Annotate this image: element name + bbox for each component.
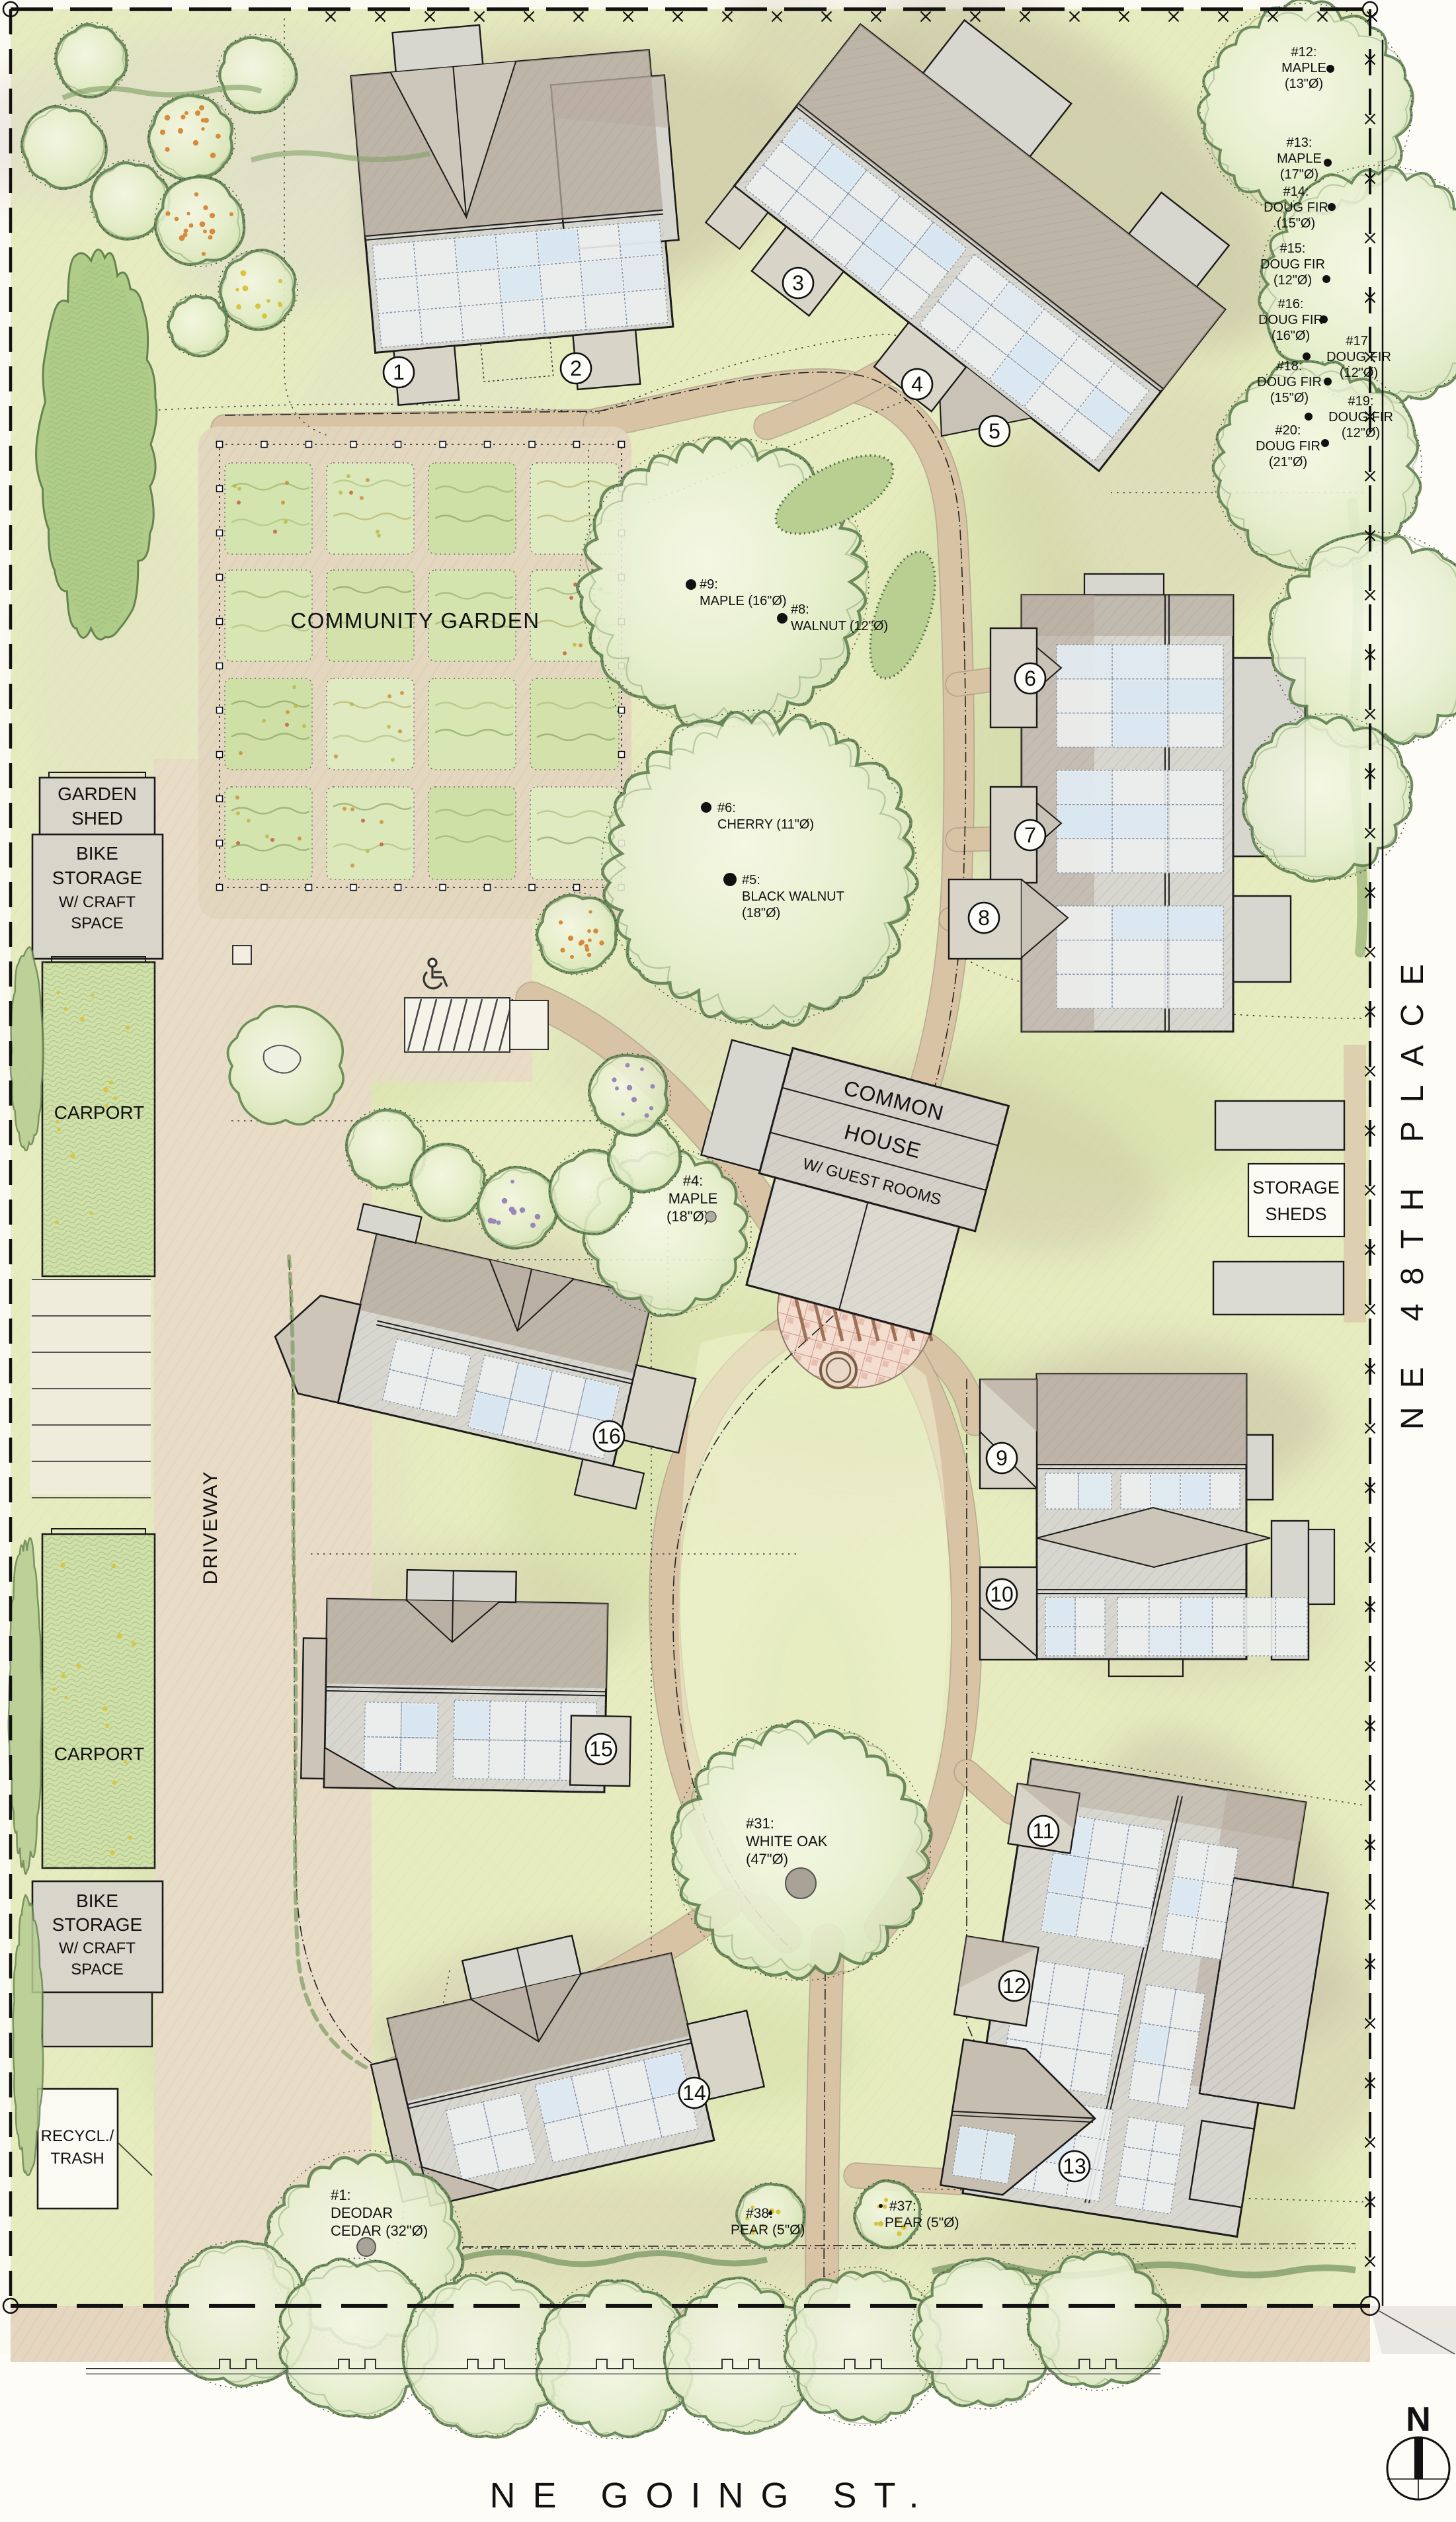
svg-text:MAPLE: MAPLE [668,1190,718,1207]
svg-text:#9:: #9: [700,577,718,592]
svg-text:12: 12 [1002,1974,1026,1998]
svg-text:4: 4 [911,372,923,396]
svg-text:16: 16 [597,1424,621,1448]
svg-text:BIKE: BIKE [76,1891,118,1911]
svg-text:11: 11 [1032,1819,1054,1843]
svg-text:8: 8 [978,906,990,930]
svg-text:CARPORT: CARPORT [54,1744,144,1764]
svg-text:#18:: #18: [1277,359,1303,374]
svg-text:#1:: #1: [331,2187,351,2203]
svg-text:MAPLE: MAPLE [1281,61,1326,75]
svg-text:#8:: #8: [791,602,809,617]
svg-text:#17:: #17: [1346,334,1372,348]
svg-text:(12"Ø): (12"Ø) [1340,366,1378,380]
svg-text:DOUG FIR: DOUG FIR [1257,375,1322,389]
svg-text:DRIVEWAY: DRIVEWAY [200,1471,222,1585]
svg-text:2: 2 [570,356,582,380]
svg-text:RECYCL./: RECYCL./ [41,2127,114,2145]
svg-text:DOUG FIR: DOUG FIR [1264,200,1328,215]
svg-text:#37:: #37: [889,2199,916,2214]
svg-text:SPACE: SPACE [71,915,124,932]
svg-text:PEAR (5"Ø): PEAR (5"Ø) [885,2215,959,2230]
svg-text:(12"Ø): (12"Ø) [1274,273,1312,288]
svg-text:(17"Ø): (17"Ø) [1280,167,1318,182]
svg-text:BIKE: BIKE [76,843,118,864]
svg-text:DOUG FIR: DOUG FIR [1326,350,1391,364]
svg-text:#20:: #20: [1275,423,1301,438]
svg-text:N: N [1406,2400,1431,2439]
svg-text:6: 6 [1024,667,1036,690]
svg-text:10: 10 [990,1582,1014,1606]
svg-text:3: 3 [792,271,804,295]
svg-text:BLACK WALNUT: BLACK WALNUT [742,889,844,904]
svg-text:NE GOING ST.: NE GOING ST. [489,2476,936,2515]
svg-text:14: 14 [682,2081,706,2105]
svg-text:(18"Ø): (18"Ø) [742,906,780,920]
svg-text:(15"Ø): (15"Ø) [1277,216,1315,231]
svg-text:STORAGE: STORAGE [52,1914,142,1935]
svg-text:#16:: #16: [1278,297,1304,311]
svg-text:PEAR (5"Ø): PEAR (5"Ø) [731,2222,805,2238]
svg-text:DOUG FIR: DOUG FIR [1258,313,1323,327]
svg-text:WHITE OAK: WHITE OAK [746,1833,828,1850]
svg-text:MAPLE: MAPLE [1277,151,1322,166]
svg-text:7: 7 [1024,823,1036,847]
svg-text:SHEDS: SHEDS [1265,1204,1326,1224]
svg-text:(12"Ø): (12"Ø) [1342,426,1380,440]
svg-text:WALNUT (12"Ø): WALNUT (12"Ø) [791,619,888,633]
svg-text:(47"Ø): (47"Ø) [746,1851,788,1867]
svg-text:(16"Ø): (16"Ø) [1272,329,1310,343]
svg-text:#6:: #6: [717,801,736,815]
svg-text:MAPLE (16"Ø): MAPLE (16"Ø) [700,594,787,608]
svg-text:#14:: #14: [1283,184,1309,199]
svg-text:#31:: #31: [746,1815,774,1832]
svg-text:9: 9 [996,1446,1008,1470]
svg-text:(21"Ø): (21"Ø) [1269,455,1307,469]
svg-text:STORAGE: STORAGE [1252,1178,1340,1198]
svg-text:(18"Ø): (18"Ø) [667,1208,709,1225]
svg-text:SHED: SHED [71,808,123,829]
svg-text:SPACE: SPACE [71,1961,124,1978]
svg-text:DEODAR: DEODAR [331,2205,393,2221]
svg-text:DOUG FIR: DOUG FIR [1256,439,1320,454]
svg-text:W/ CRAFT: W/ CRAFT [59,1939,136,1957]
svg-text:15: 15 [589,1737,613,1761]
svg-text:#13:: #13: [1287,136,1313,150]
svg-text:NE 48TH PLACE: NE 48TH PLACE [1395,946,1430,1430]
svg-text:13: 13 [1063,2154,1086,2178]
svg-text:(13"Ø): (13"Ø) [1285,77,1323,91]
svg-text:COMMUNITY GARDEN: COMMUNITY GARDEN [290,608,540,633]
svg-text:#12:: #12: [1291,45,1317,60]
svg-text:W/ CRAFT: W/ CRAFT [59,893,136,911]
svg-text:CARPORT: CARPORT [54,1102,144,1123]
svg-text:#5:: #5: [742,873,760,887]
svg-text:(15"Ø): (15"Ø) [1270,391,1309,405]
svg-text:1: 1 [393,360,405,384]
svg-text:#4:: #4: [683,1172,704,1189]
svg-text:5: 5 [989,419,1000,443]
svg-text:GARDEN: GARDEN [58,784,137,804]
svg-text:TRASH: TRASH [50,2150,104,2168]
svg-text:CHERRY (11"Ø): CHERRY (11"Ø) [717,817,814,832]
svg-text:CEDAR (32"Ø): CEDAR (32"Ø) [331,2222,428,2239]
svg-text:#15:: #15: [1280,241,1306,256]
svg-text:STORAGE: STORAGE [52,868,142,888]
svg-text:DOUG FIR: DOUG FIR [1260,257,1325,272]
